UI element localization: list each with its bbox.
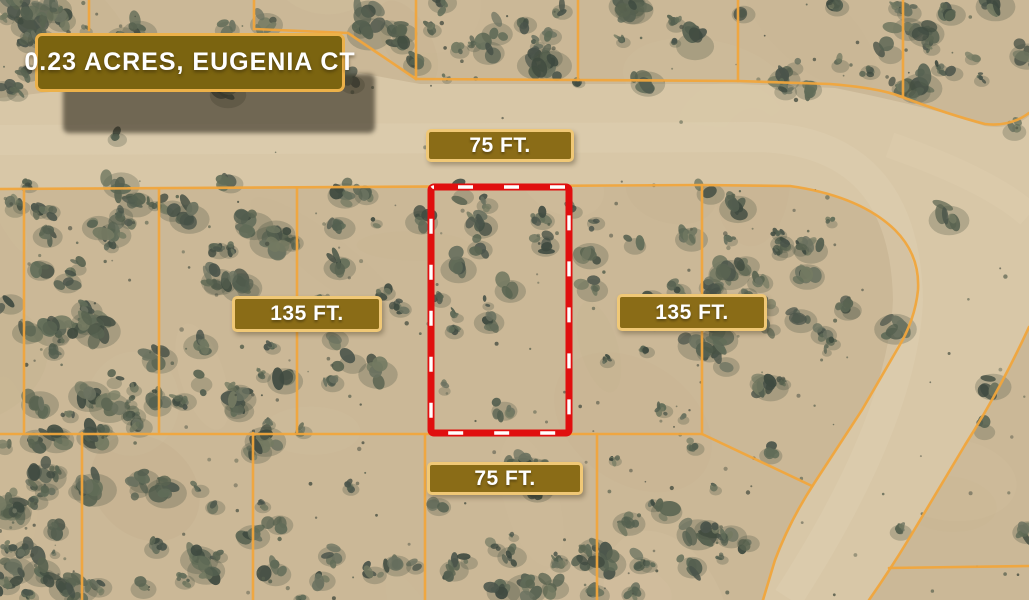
dimension-label-top-text: 75 FT. xyxy=(469,134,530,158)
title-banner-text: 0.23 ACRES, EUGENIA CT xyxy=(24,48,355,77)
dimension-label-left: 135 FT. xyxy=(232,296,382,332)
dimension-label-right: 135 FT. xyxy=(617,294,767,331)
dimension-label-bottom-text: 75 FT. xyxy=(474,467,535,491)
dimension-label-bottom: 75 FT. xyxy=(427,462,583,495)
title-banner: 0.23 ACRES, EUGENIA CT xyxy=(35,33,345,92)
dimension-label-left-text: 135 FT. xyxy=(270,302,344,326)
property-aerial-view: 0.23 ACRES, EUGENIA CT 75 FT. 75 FT. 135… xyxy=(0,0,1029,600)
dimension-label-right-text: 135 FT. xyxy=(655,301,729,325)
dimension-label-top: 75 FT. xyxy=(426,129,574,162)
